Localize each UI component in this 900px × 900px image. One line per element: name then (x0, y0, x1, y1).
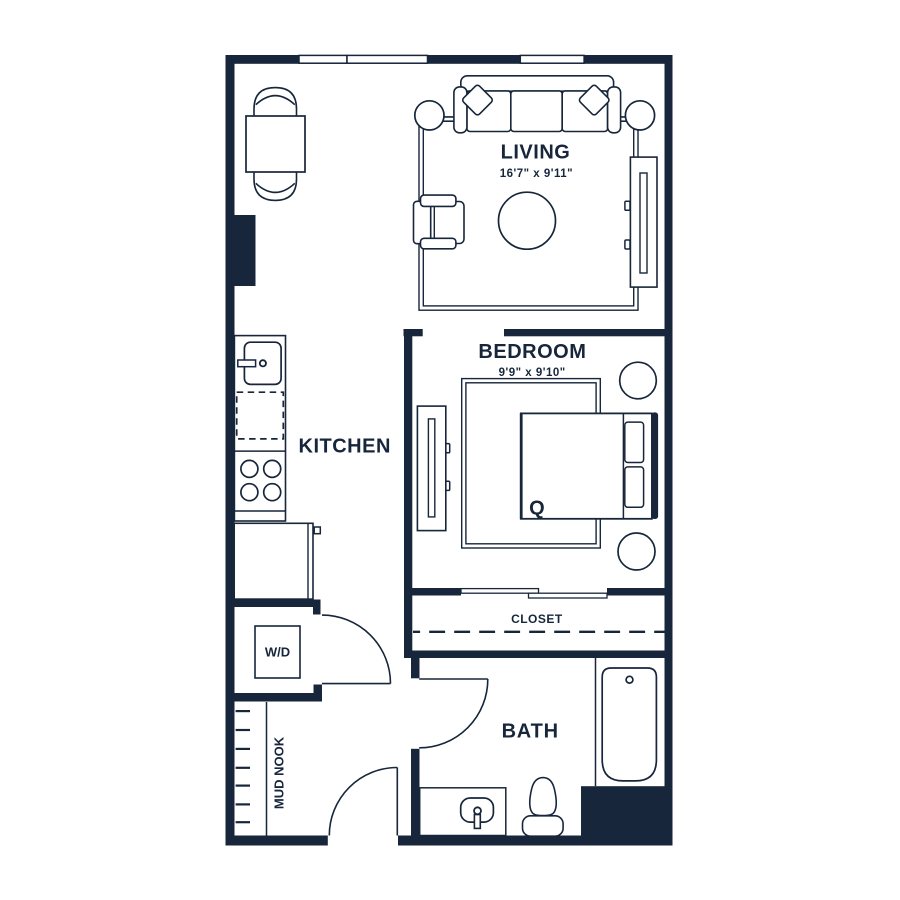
svg-text:BEDROOM: BEDROOM (478, 341, 586, 363)
svg-text:CLOSET: CLOSET (511, 612, 563, 626)
svg-text:KITCHEN: KITCHEN (299, 436, 391, 458)
svg-text:LIVING: LIVING (501, 141, 571, 163)
svg-text:W/D: W/D (265, 645, 290, 660)
svg-text:16'7" x 9'11": 16'7" x 9'11" (500, 168, 573, 180)
svg-text:9'9" x 9'10": 9'9" x 9'10" (499, 367, 566, 379)
svg-text:MUD NOOK: MUD NOOK (272, 736, 287, 809)
svg-text:Q: Q (529, 498, 545, 520)
svg-text:BATH: BATH (502, 721, 559, 743)
